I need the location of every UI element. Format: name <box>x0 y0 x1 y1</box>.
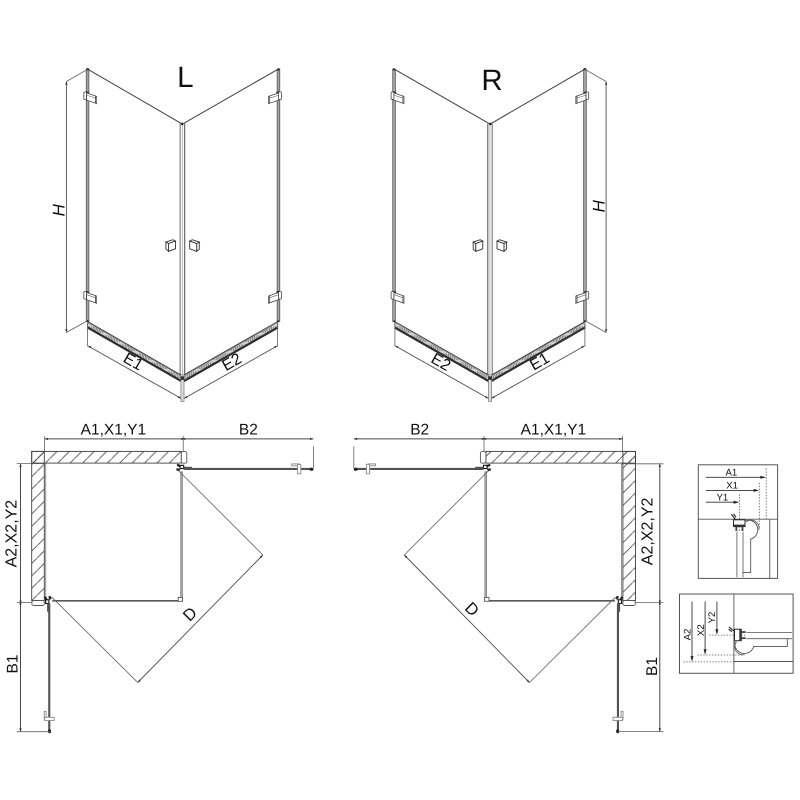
svg-text:B1: B1 <box>5 655 22 674</box>
svg-text:B2: B2 <box>239 421 258 438</box>
svg-text:A2,X2,Y2: A2,X2,Y2 <box>639 498 656 566</box>
svg-text:A2,X2,Y2: A2,X2,Y2 <box>4 500 21 568</box>
svg-text:R: R <box>481 64 502 97</box>
svg-text:L: L <box>177 61 193 94</box>
svg-text:Y2: Y2 <box>707 612 718 624</box>
svg-text:X2: X2 <box>696 624 707 636</box>
svg-text:B2: B2 <box>410 421 429 438</box>
svg-text:A1,X1,Y1: A1,X1,Y1 <box>81 421 147 438</box>
svg-text:H: H <box>590 199 609 212</box>
svg-text:B1: B1 <box>644 657 661 676</box>
svg-text:X1: X1 <box>726 481 738 492</box>
svg-text:A2: A2 <box>682 629 693 641</box>
svg-text:A1,X1,Y1: A1,X1,Y1 <box>521 421 587 438</box>
svg-text:Y1: Y1 <box>717 493 729 504</box>
svg-text:H: H <box>49 203 68 216</box>
svg-text:D: D <box>461 599 482 620</box>
svg-text:A1: A1 <box>726 468 738 479</box>
